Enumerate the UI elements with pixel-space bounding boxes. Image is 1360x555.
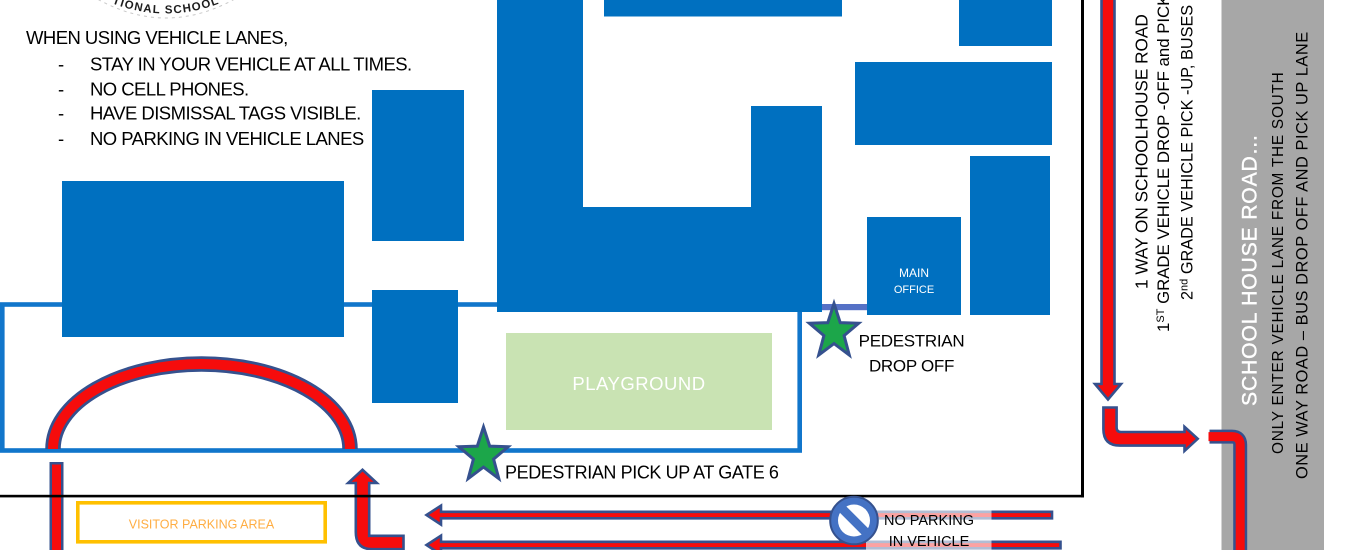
svg-text:ONE WAY ROAD – BUS DROP OFF AN: ONE WAY ROAD – BUS DROP OFF AND PICK UP … bbox=[1294, 31, 1312, 479]
svg-text:1 WAY ON SCHOOLHOUSE ROAD: 1 WAY ON SCHOOLHOUSE ROAD bbox=[1132, 14, 1152, 289]
svg-text:2nd GRADE VEHICLE PICK -UP, BU: 2nd GRADE VEHICLE PICK -UP, BUSES bbox=[1179, 5, 1197, 300]
svg-text:NO CELL PHONES.: NO CELL PHONES. bbox=[90, 79, 249, 100]
svg-text:-: - bbox=[58, 128, 64, 149]
svg-text:IN VEHICLE: IN VEHICLE bbox=[889, 534, 970, 550]
svg-text:DROP OFF: DROP OFF bbox=[869, 357, 954, 376]
svg-text:PEDESTRIAN: PEDESTRIAN bbox=[859, 332, 965, 351]
svg-text:HAVE DISMISSAL TAGS VISIBLE.: HAVE DISMISSAL TAGS VISIBLE. bbox=[90, 103, 361, 124]
svg-text:PEDESTRIAN PICK UP AT GATE 6: PEDESTRIAN PICK UP AT GATE 6 bbox=[505, 463, 779, 483]
svg-text:PLAYGROUND: PLAYGROUND bbox=[572, 373, 705, 394]
svg-text:SCHOOL HOUSE ROAD…: SCHOOL HOUSE ROAD… bbox=[1239, 133, 1262, 406]
svg-text:NO PARKING: NO PARKING bbox=[884, 513, 974, 529]
svg-text:ONLY ENTER VEHICLE LANE FROM T: ONLY ENTER VEHICLE LANE FROM THE SOUTH bbox=[1270, 71, 1287, 454]
svg-text:NO PARKING IN VEHICLE LANES: NO PARKING IN VEHICLE LANES bbox=[90, 128, 364, 149]
svg-text:VISITOR PARKING AREA: VISITOR PARKING AREA bbox=[129, 518, 275, 532]
svg-text:-: - bbox=[58, 103, 64, 124]
svg-text:WHEN USING VEHICLE LANES,: WHEN USING VEHICLE LANES, bbox=[26, 27, 288, 48]
svg-text:STAY IN YOUR VEHICLE AT ALL TI: STAY IN YOUR VEHICLE AT ALL TIMES. bbox=[90, 54, 412, 75]
svg-text:1ST GRADE VEHICLE DROP -OFF an: 1ST GRADE VEHICLE DROP -OFF and PICK UP bbox=[1154, 0, 1173, 332]
svg-text:OFFICE: OFFICE bbox=[894, 284, 934, 296]
svg-text:MAIN: MAIN bbox=[899, 266, 929, 280]
svg-text:-: - bbox=[58, 79, 64, 100]
svg-text:-: - bbox=[58, 54, 64, 75]
